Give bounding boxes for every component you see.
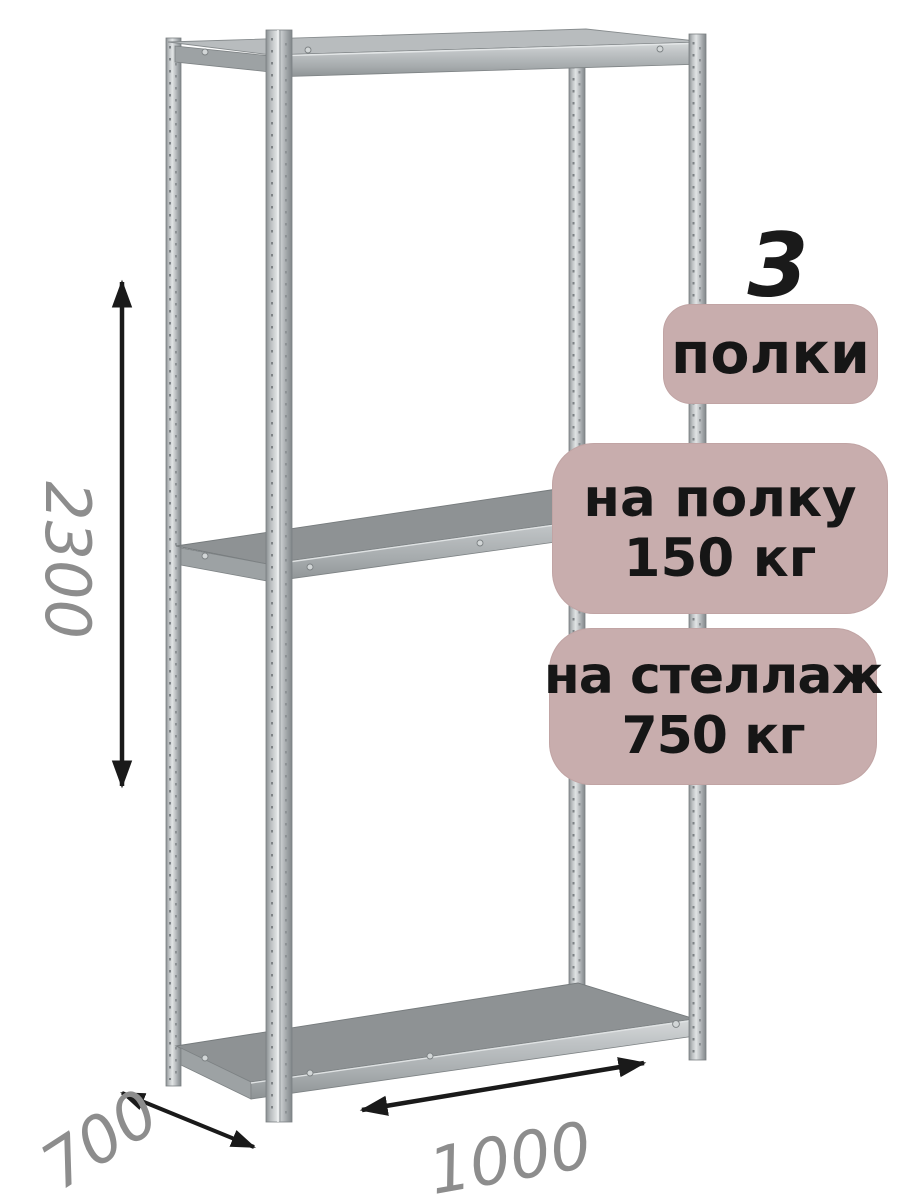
depth-dimension: 700 [29, 1076, 254, 1200]
bottom-shelf [176, 983, 695, 1099]
per-shelf-load-line1: на полку [583, 469, 856, 529]
shelf-count-number: 3 [708, 222, 848, 310]
height-value: 2300 [31, 481, 104, 639]
per-rack-load-line2: 750 кг [621, 707, 804, 767]
product-image: 2300 700 1000 3 полки на полку 150 кг на… [0, 0, 900, 1200]
height-dimension: 2300 [31, 282, 122, 786]
depth-value: 700 [29, 1076, 172, 1200]
shelf-count-label: полки [671, 326, 870, 383]
width-value: 1000 [424, 1109, 597, 1200]
width-dimension: 1000 [362, 1063, 644, 1200]
per-rack-load-line1: на стеллаж [544, 647, 882, 707]
front-left-post [266, 30, 292, 1122]
back-left-post [166, 38, 181, 1086]
per-shelf-load-line2: 150 кг [624, 529, 817, 589]
per-shelf-load-badge: на полку 150 кг [552, 443, 888, 614]
top-shelf [168, 29, 705, 77]
per-rack-load-badge: на стеллаж 750 кг [549, 628, 877, 785]
shelf-count-badge: полки [663, 304, 878, 404]
